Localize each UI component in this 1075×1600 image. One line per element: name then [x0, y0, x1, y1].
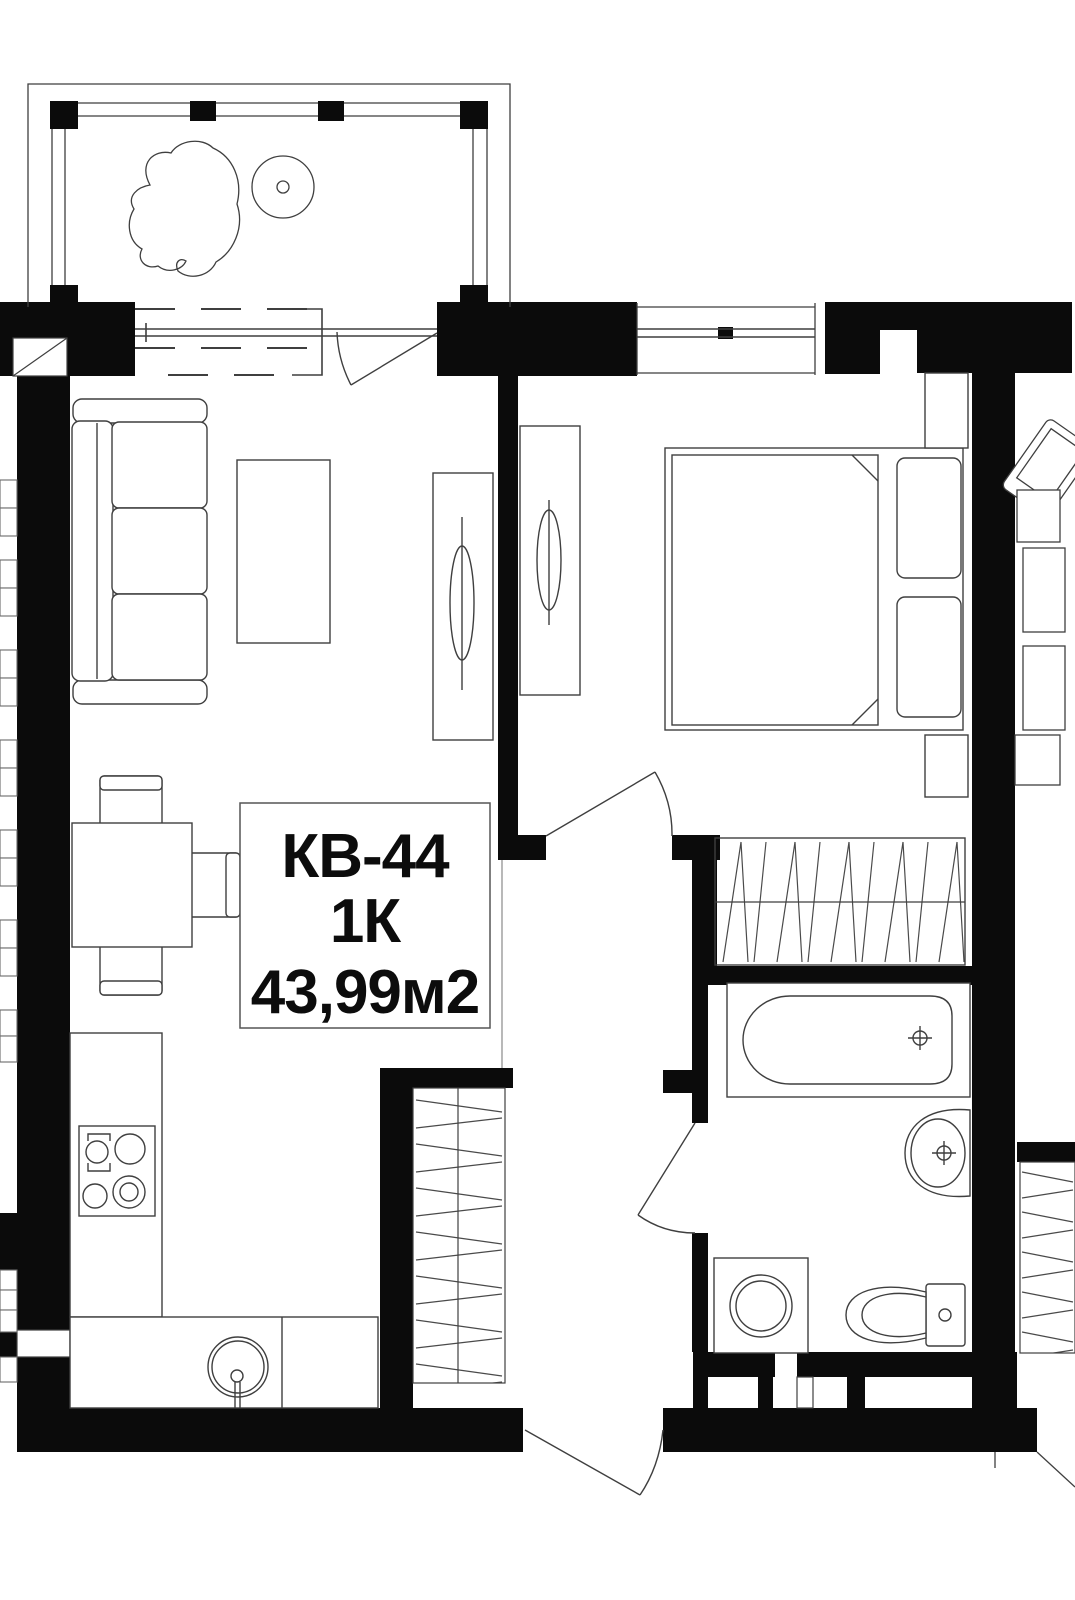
unit-label: КВ-44 [281, 822, 450, 891]
bathroom-sink [905, 1110, 970, 1197]
tv-unit-living [433, 473, 493, 740]
balcony-door [337, 332, 437, 385]
washing-machine [714, 1258, 808, 1353]
entry-door [525, 1430, 663, 1495]
wardrobe-bedroom [715, 838, 965, 965]
label-box: КВ-44 1К 43,99м2 [240, 803, 490, 1028]
balcony-table [252, 156, 314, 218]
pillow [897, 597, 961, 717]
toilet [846, 1284, 965, 1346]
nightstand-top [925, 373, 968, 448]
burner-icon [115, 1134, 145, 1164]
bedroom-door [546, 772, 672, 836]
coffee-table [237, 460, 330, 643]
bathtub [727, 983, 970, 1097]
balcony-posts [50, 101, 488, 307]
balcony-railing [52, 103, 487, 307]
plant-icon [129, 141, 239, 276]
balcony-railing-inner [65, 116, 473, 307]
floor-plan: КВ-44 1К 43,99м2 [0, 0, 1075, 1600]
pillow [897, 458, 961, 578]
burner-icon [86, 1141, 108, 1163]
neighbor-right-wardrobe [1020, 1162, 1075, 1353]
nightstand-bottom [925, 735, 968, 797]
stove [79, 1126, 155, 1216]
sofa [72, 399, 207, 704]
mattress [672, 455, 878, 725]
dining-table [72, 823, 192, 947]
bathroom-door [638, 1123, 695, 1233]
tv-unit-bedroom [520, 426, 580, 695]
wardrobe-hall [413, 1088, 505, 1383]
rooms-label: 1К [330, 887, 401, 956]
living-window [135, 309, 437, 375]
burner-icon [120, 1183, 138, 1201]
balcony [28, 84, 510, 307]
area-label: 43,99м2 [251, 958, 480, 1027]
balcony-outline [28, 84, 510, 307]
burner-icon [83, 1184, 107, 1208]
faucet-icon [231, 1370, 243, 1382]
bed [665, 448, 963, 730]
neighbor-bottom-right-lines [995, 1452, 1075, 1487]
dining-set [72, 776, 240, 995]
